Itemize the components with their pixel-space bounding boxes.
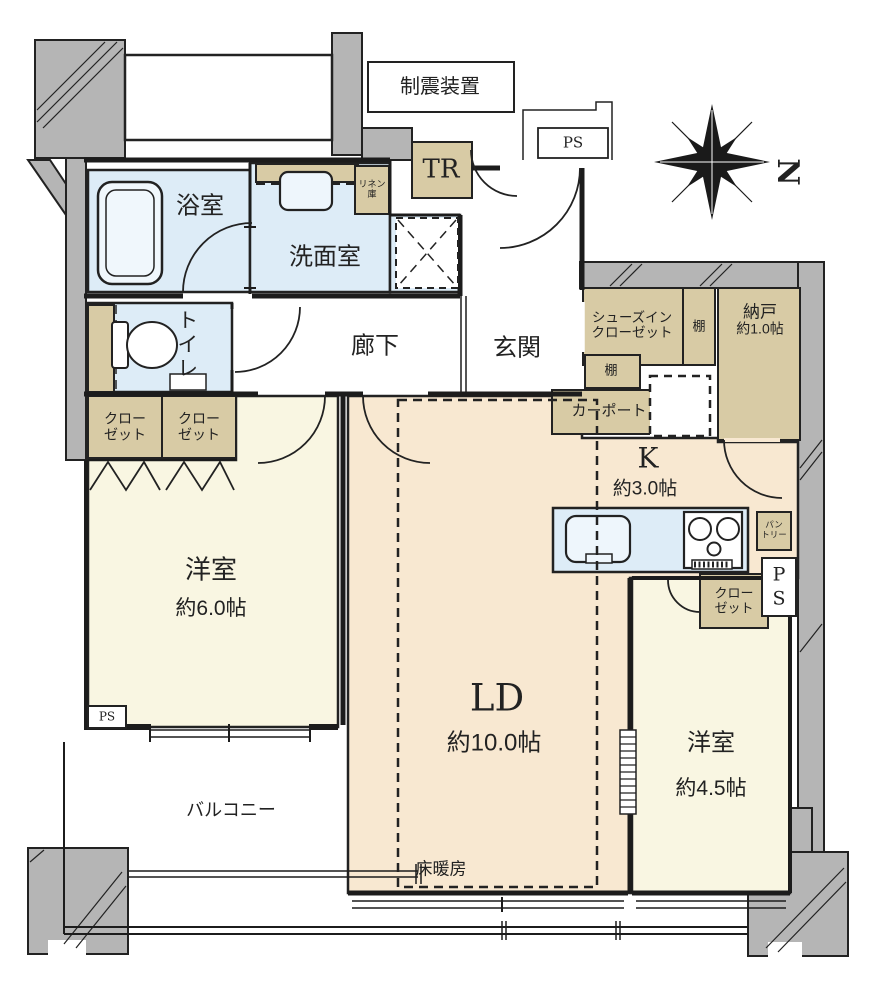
carport-label: カーポート bbox=[571, 404, 646, 421]
ps-bottom-label: PS bbox=[99, 710, 115, 723]
bathroom-label: 浴室 bbox=[176, 194, 224, 221]
storeroom-size: 約1.0帖 bbox=[736, 322, 783, 338]
floor-heating-label: 床暖房 bbox=[416, 859, 467, 878]
sliding-window-icon bbox=[620, 730, 636, 814]
closet-c-line1: クロー bbox=[714, 586, 753, 601]
ps-right-line2: S bbox=[772, 587, 785, 611]
western45-size: 約4.5帖 bbox=[675, 777, 746, 801]
sic-line1: シューズイン bbox=[592, 310, 673, 325]
pantry-line2: トリー bbox=[761, 530, 787, 540]
ps-right-label: P S bbox=[772, 563, 785, 611]
shelf-right-label: 棚 bbox=[692, 320, 705, 335]
washroom-label: 洗面室 bbox=[289, 245, 361, 272]
seismic-device-label: 制震装置 bbox=[400, 76, 480, 98]
closet-a-line2: ゼット bbox=[104, 427, 146, 443]
closet-c-label: クロー ゼット bbox=[714, 586, 753, 615]
bathtub-icon bbox=[98, 182, 162, 284]
closet-b-label: クロー ゼット bbox=[178, 411, 220, 442]
toilet-label: トイレ bbox=[174, 309, 198, 381]
closet-a-label: クロー ゼット bbox=[104, 411, 146, 442]
kitchen-size: 約3.0帖 bbox=[613, 478, 677, 499]
hallway-label: 廊下 bbox=[351, 334, 399, 361]
western6-size: 約6.0帖 bbox=[175, 597, 246, 621]
linen-line2: 庫 bbox=[358, 189, 385, 199]
entry-door-arc bbox=[500, 168, 580, 248]
toilet-side-shelf bbox=[88, 305, 114, 392]
north-label: N bbox=[770, 158, 804, 185]
vanity-sink-icon bbox=[280, 172, 332, 210]
floor-plan: 制震装置 PS TR リネン 庫 浴室 洗面室 トイレ 廊下 玄関 シューズイン… bbox=[0, 0, 880, 984]
tr-door-arc bbox=[471, 150, 517, 196]
closet-c-line2: ゼット bbox=[714, 601, 753, 616]
laundry-space-icon bbox=[396, 218, 458, 288]
kitchen-label: K bbox=[638, 442, 659, 473]
closet-b-line2: ゼット bbox=[178, 427, 220, 443]
balcony-label: バルコニー bbox=[186, 800, 276, 820]
sic-line2: クローゼット bbox=[592, 325, 673, 340]
western6-label: 洋室 bbox=[185, 555, 237, 584]
linen-label: リネン 庫 bbox=[358, 179, 385, 199]
toilet-door-arc bbox=[235, 307, 300, 372]
compass-icon bbox=[654, 104, 770, 220]
pantry-label: パン トリー bbox=[761, 520, 787, 539]
shoes-in-closet-label: シューズイン クローゼット bbox=[592, 310, 673, 340]
storeroom-label: 納戸 約1.0帖 bbox=[736, 303, 783, 338]
entrance-label: 玄関 bbox=[493, 336, 541, 363]
ld-size: 約10.0帖 bbox=[447, 731, 542, 758]
ps-right-line1: P bbox=[772, 563, 785, 587]
linen-line1: リネン bbox=[358, 179, 385, 189]
tr-label: TR bbox=[423, 155, 460, 184]
shelf-lower-label: 棚 bbox=[604, 364, 617, 379]
ld-label: LD bbox=[470, 677, 524, 718]
western45-label: 洋室 bbox=[687, 731, 735, 758]
ps-top-label: PS bbox=[563, 135, 583, 152]
closet-b-line1: クロー bbox=[178, 411, 220, 427]
stove-icon bbox=[684, 512, 742, 569]
closet-a-line1: クロー bbox=[104, 411, 146, 427]
floor-plan-drawing bbox=[0, 0, 880, 984]
storeroom-name: 納戸 bbox=[736, 303, 783, 322]
refrigerator-space-icon bbox=[650, 376, 710, 436]
